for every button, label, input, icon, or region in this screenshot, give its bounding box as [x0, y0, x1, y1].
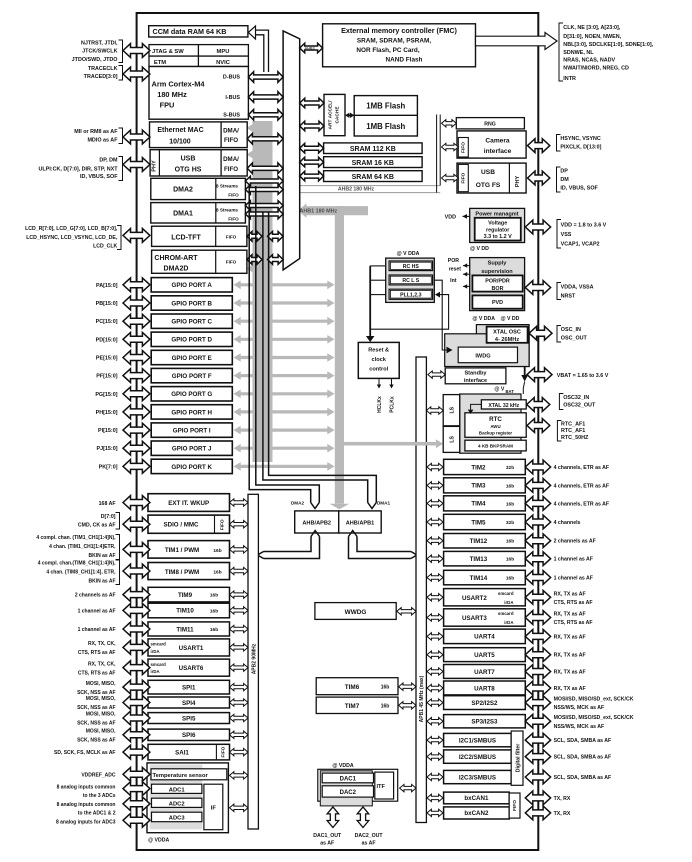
svg-text:RX, TX as AF: RX, TX as AF [554, 653, 586, 659]
svg-text:CLK, NE [3:0], A[23:0],: CLK, NE [3:0], A[23:0], [563, 25, 621, 31]
svg-text:CMD, CK as AF: CMD, CK as AF [78, 523, 116, 529]
svg-text:VSS: VSS [561, 232, 572, 238]
svg-text:RTC_50HZ: RTC_50HZ [561, 435, 589, 441]
svg-text:USART1: USART1 [179, 645, 204, 652]
svg-text:8 analog inputs for ADC3: 8 analog inputs for ADC3 [56, 820, 116, 826]
svg-text:JTAG & SW: JTAG & SW [152, 49, 184, 55]
svg-text:CCM data RAM 64 KB: CCM data RAM 64 KB [153, 27, 227, 36]
svg-text:NAND Flash: NAND Flash [386, 56, 423, 63]
svg-text:16b: 16b [213, 569, 221, 575]
svg-text:BKIN as AF: BKIN as AF [88, 578, 115, 584]
svg-text:ADC3: ADC3 [169, 816, 186, 822]
svg-text:MII or RMII as AF: MII or RMII as AF [74, 129, 118, 135]
svg-text:SP3/I2S3: SP3/I2S3 [471, 719, 498, 726]
svg-text:AHB/APB1: AHB/APB1 [346, 521, 375, 527]
svg-text:ADC2: ADC2 [169, 801, 185, 807]
svg-text:DMA/: DMA/ [223, 156, 239, 163]
svg-text:BOR: BOR [492, 286, 504, 292]
svg-text:interface: interface [484, 148, 512, 155]
svg-text:RX, TX as AF: RX, TX as AF [554, 634, 586, 640]
svg-text:BAT: BAT [506, 389, 515, 394]
svg-text:GPIO PORT K: GPIO PORT K [171, 464, 212, 471]
svg-text:RX, TX as AF: RX, TX as AF [554, 591, 586, 597]
svg-text:4 chan. (TIM1_CH1[1:4]ETR,: 4 chan. (TIM1_CH1[1:4]ETR, [49, 544, 116, 550]
svg-text:RC HS: RC HS [403, 264, 420, 270]
svg-text:CTS, RTS as AF: CTS, RTS as AF [554, 620, 593, 626]
svg-text:DMA2: DMA2 [291, 501, 304, 506]
svg-text:TX, RX: TX, RX [554, 811, 571, 817]
svg-text:OSC32_OUT: OSC32_OUT [563, 403, 596, 409]
svg-text:smcard: smcard [498, 611, 514, 616]
svg-text:SCL, SDA, SMBA as AF: SCL, SDA, SMBA as AF [554, 755, 612, 761]
svg-text:OSC32_IN: OSC32_IN [563, 395, 589, 401]
svg-text:DAC2_OUT: DAC2_OUT [355, 833, 384, 839]
svg-text:UART5: UART5 [474, 652, 495, 659]
svg-text:RTC_AF1: RTC_AF1 [561, 428, 585, 434]
svg-text:NRAS, NCAS, NADV: NRAS, NCAS, NADV [563, 58, 615, 64]
svg-text:irDA: irDA [504, 620, 514, 625]
svg-text:HCLKx: HCLKx [377, 396, 383, 413]
svg-text:RTC_AF1: RTC_AF1 [561, 422, 585, 428]
svg-text:16b: 16b [381, 704, 390, 710]
svg-text:RX, TX as AF: RX, TX as AF [554, 686, 586, 692]
svg-text:IF: IF [211, 806, 217, 812]
svg-text:NRST: NRST [561, 293, 576, 299]
svg-text:SPI4: SPI4 [182, 700, 196, 707]
svg-text:DMA2D: DMA2D [164, 265, 189, 272]
svg-text:1MB Flash: 1MB Flash [366, 101, 405, 110]
svg-text:FIFO: FIFO [220, 519, 226, 530]
svg-text:Digital filter: Digital filter [515, 744, 521, 773]
svg-text:RX, TX, CK,: RX, TX, CK, [88, 641, 116, 647]
svg-text:clock: clock [372, 357, 387, 363]
svg-text:POR/PDR: POR/PDR [485, 279, 510, 285]
svg-text:GPIO PORT C: GPIO PORT C [171, 319, 212, 326]
svg-text:4- 26MHz: 4- 26MHz [495, 337, 519, 343]
svg-text:VCAP1, VCAP2: VCAP1, VCAP2 [561, 242, 600, 248]
svg-text:Temperature sensor: Temperature sensor [153, 773, 209, 779]
svg-text:SD, SCK, FS, MCLK as AF: SD, SCK, FS, MCLK as AF [54, 750, 116, 756]
svg-text:TIM1 / PWM: TIM1 / PWM [165, 547, 199, 554]
svg-text:FIFO: FIFO [228, 192, 239, 197]
svg-text:I-BUS: I-BUS [225, 95, 240, 101]
svg-text:16b: 16b [506, 557, 514, 563]
svg-text:PHY: PHY [515, 175, 521, 187]
svg-text:POR: POR [448, 258, 459, 264]
svg-text:PH[15:0]: PH[15:0] [96, 410, 118, 416]
svg-text:GPIO PORT J: GPIO PORT J [172, 446, 212, 453]
svg-text:USB: USB [181, 155, 196, 162]
svg-text:RC L S: RC L S [402, 278, 419, 284]
svg-text:S-BUS: S-BUS [223, 112, 240, 118]
svg-text:4 chan. (TIM8_CH1[1:4], ETR,: 4 chan. (TIM8_CH1[1:4], ETR, [46, 569, 116, 575]
svg-text:USART2: USART2 [462, 595, 487, 602]
svg-text:16b: 16b [381, 685, 390, 691]
svg-text:USB: USB [481, 169, 495, 176]
svg-text:I2C1/SMBUS: I2C1/SMBUS [459, 737, 496, 744]
svg-text:PJ[15:0]: PJ[15:0] [97, 446, 118, 452]
svg-text:SCL, SDA, SMBA as AF: SCL, SDA, SMBA as AF [554, 775, 612, 781]
svg-text:irDA: irDA [151, 669, 160, 674]
svg-text:VDDREF_ADC: VDDREF_ADC [81, 772, 116, 778]
svg-text:PA[15:0]: PA[15:0] [96, 283, 118, 289]
svg-text:smcard: smcard [151, 662, 167, 667]
svg-text:SPI1: SPI1 [182, 684, 196, 691]
svg-text:RTC: RTC [489, 416, 502, 423]
svg-text:Voltage: Voltage [488, 221, 507, 227]
svg-text:UART8: UART8 [474, 685, 495, 692]
svg-text:@ V DD: @ V DD [501, 316, 520, 322]
svg-text:VDD: VDD [445, 214, 456, 220]
svg-text:PVD: PVD [492, 300, 503, 306]
svg-text:FIFO: FIFO [224, 166, 238, 173]
svg-text:SCK, NSS as AF: SCK, NSS as AF [77, 690, 115, 696]
svg-text:AWU: AWU [490, 424, 500, 429]
svg-text:168 AF: 168 AF [99, 501, 116, 507]
svg-text:@ VDDA: @ VDDA [148, 837, 169, 843]
svg-text:RNG: RNG [484, 122, 496, 128]
svg-text:VBAT = 1.65 to 3.6 V: VBAT = 1.65 to 3.6 V [557, 373, 609, 379]
svg-text:TIM10: TIM10 [176, 608, 194, 615]
svg-text:SPI6: SPI6 [182, 732, 196, 739]
svg-text:DP: DP [560, 169, 568, 175]
svg-text:FIFO: FIFO [224, 137, 238, 144]
svg-text:16b: 16b [506, 539, 514, 545]
svg-text:4 compl. chan.(TIM8_CH1[1:4]N): 4 compl. chan.(TIM8_CH1[1:4]N), [38, 560, 116, 566]
svg-text:MOSI, MISO,: MOSI, MISO, [86, 696, 116, 702]
svg-text:TRACED[3:0]: TRACED[3:0] [84, 74, 118, 80]
svg-text:TIM8 / PWM: TIM8 / PWM [165, 569, 199, 576]
svg-text:SCK, NSS as AF: SCK, NSS as AF [77, 738, 115, 744]
svg-text:SP2/I2S2: SP2/I2S2 [471, 700, 498, 707]
svg-text:as AF: as AF [362, 841, 376, 847]
svg-text:D-BUS: D-BUS [223, 74, 240, 80]
svg-text:D[7:0]: D[7:0] [101, 514, 116, 520]
svg-text:GPIO PORT D: GPIO PORT D [171, 337, 212, 344]
svg-text:AHB2 180 MHz: AHB2 180 MHz [338, 187, 375, 193]
svg-text:VDD = 1.8 to 3.6 V: VDD = 1.8 to 3.6 V [561, 223, 607, 229]
svg-text:BKIN as AF: BKIN as AF [88, 553, 115, 559]
svg-text:8 Streams: 8 Streams [216, 207, 238, 212]
svg-text:INTR: INTR [563, 76, 576, 82]
svg-text:Ethernet MAC: Ethernet MAC [157, 127, 203, 134]
svg-text:TIM12: TIM12 [470, 538, 488, 545]
svg-text:USART3: USART3 [462, 615, 487, 622]
svg-text:1MB Flash: 1MB Flash [366, 122, 405, 131]
svg-text:OTG HS: OTG HS [175, 167, 202, 174]
svg-text:Reset &: Reset & [368, 348, 389, 354]
svg-text:TIM4: TIM4 [471, 501, 486, 508]
svg-text:16b: 16b [213, 548, 221, 554]
svg-text:@ V DDA: @ V DDA [397, 251, 420, 257]
svg-text:PIXCLK, D[13:0]: PIXCLK, D[13:0] [560, 144, 601, 150]
svg-text:GPIO PORT F: GPIO PORT F [172, 373, 212, 380]
svg-text:8 Streams: 8 Streams [216, 183, 238, 188]
svg-text:MOSI, MISO,: MOSI, MISO, [86, 729, 116, 735]
svg-text:GPIO PORT B: GPIO PORT B [171, 300, 212, 307]
svg-text:I2C2/SMBUS: I2C2/SMBUS [459, 754, 496, 761]
svg-text:FIFO: FIFO [226, 260, 237, 265]
svg-text:D[31:0], NOEN, NWEN,: D[31:0], NOEN, NWEN, [563, 34, 621, 40]
svg-text:16b: 16b [210, 608, 218, 614]
svg-text:FIFO: FIFO [221, 746, 227, 757]
svg-text:4 channels, ETR as AF: 4 channels, ETR as AF [554, 465, 609, 471]
svg-text:APB1 45 MHz (max): APB1 45 MHz (max) [419, 675, 425, 722]
svg-text:GPIO PORT E: GPIO PORT E [172, 355, 212, 362]
svg-text:OTG FS: OTG FS [476, 182, 501, 189]
svg-text:DMA1: DMA1 [173, 211, 193, 218]
svg-text:NWAIT/NIORD, NREG, CD: NWAIT/NIORD, NREG, CD [563, 65, 629, 71]
svg-text:16b: 16b [506, 576, 514, 582]
svg-text:irDA: irDA [151, 649, 160, 654]
svg-text:VDDA, VSSA: VDDA, VSSA [561, 285, 594, 291]
svg-text:32b: 32b [506, 465, 514, 471]
svg-text:LS: LS [450, 406, 456, 413]
svg-text:3.3 to 1.2 V: 3.3 to 1.2 V [484, 234, 513, 240]
svg-text:GPIO PORT G: GPIO PORT G [171, 391, 212, 398]
svg-text:FIFO: FIFO [226, 235, 237, 240]
svg-text:HSYNC, VSYNC: HSYNC, VSYNC [560, 136, 601, 142]
svg-text:16b: 16b [210, 627, 218, 633]
svg-text:JTDO/SWD, JTDO: JTDO/SWD, JTDO [72, 57, 118, 63]
svg-text:PLL1,2,3: PLL1,2,3 [400, 293, 421, 299]
svg-text:TRACECLK: TRACECLK [88, 66, 118, 72]
svg-text:ADC1: ADC1 [169, 787, 186, 793]
svg-text:FPU: FPU [160, 101, 175, 110]
svg-text:2 channels as AF: 2 channels as AF [554, 539, 596, 545]
svg-text:180 MHz: 180 MHz [157, 90, 187, 99]
svg-text:UART4: UART4 [474, 634, 495, 641]
svg-text:1 channel as AF: 1 channel as AF [554, 576, 593, 582]
svg-text:10/100: 10/100 [169, 139, 191, 146]
svg-text:TIM7: TIM7 [345, 703, 360, 710]
svg-text:XTAL 32 kHz: XTAL 32 kHz [488, 403, 519, 409]
svg-text:TIM13: TIM13 [470, 556, 488, 563]
svg-text:TIM9: TIM9 [178, 592, 193, 599]
svg-text:DMA1: DMA1 [377, 501, 390, 506]
svg-text:1 channel as AF: 1 channel as AF [78, 608, 116, 614]
svg-text:MOSI, MISO,: MOSI, MISO, [86, 712, 116, 718]
svg-text:4 channels: 4 channels [554, 520, 581, 526]
svg-text:GPIO PORT I: GPIO PORT I [173, 428, 211, 435]
svg-text:CACHE: CACHE [335, 106, 341, 124]
svg-text:to the ADC1 & 2: to the ADC1 & 2 [78, 811, 116, 817]
svg-text:PK[7:0]: PK[7:0] [99, 464, 118, 470]
svg-text:4 channels, ETR as AF: 4 channels, ETR as AF [554, 483, 609, 489]
svg-text:USART6: USART6 [179, 665, 204, 672]
svg-text:AHB1 180 MHz: AHB1 180 MHz [300, 209, 338, 215]
svg-text:SRAM 112 KB: SRAM 112 KB [350, 146, 396, 153]
svg-text:ID, VBUS, SOF: ID, VBUS, SOF [80, 174, 118, 180]
svg-text:8 analog inputs common: 8 analog inputs common [57, 802, 116, 808]
svg-text:TIM3: TIM3 [471, 483, 486, 490]
svg-text:AHB3: AHB3 [304, 47, 314, 51]
svg-text:Camera: Camera [485, 138, 510, 145]
svg-text:PC[15:0]: PC[15:0] [96, 319, 118, 325]
svg-text:FIFO: FIFO [228, 216, 239, 221]
svg-text:1 channel as AF: 1 channel as AF [554, 557, 593, 563]
svg-text:ULPI:CK, D[7:0], DIR, STP, NXT: ULPI:CK, D[7:0], DIR, STP, NXT [39, 166, 119, 172]
svg-text:SCL, SDA, SMBA as AF: SCL, SDA, SMBA as AF [554, 738, 612, 744]
svg-text:NSS/WS, MCK as AF: NSS/WS, MCK as AF [554, 724, 605, 730]
svg-text:SCK, NSS as AF: SCK, NSS as AF [77, 721, 115, 727]
svg-text:GPIO PORT A: GPIO PORT A [172, 282, 213, 289]
svg-text:DM: DM [560, 177, 569, 183]
svg-text:supervision: supervision [481, 269, 513, 275]
svg-text:SDIO / MMC: SDIO / MMC [163, 522, 199, 529]
svg-text:XTAL OSC: XTAL OSC [493, 329, 521, 335]
svg-text:PD[15:0]: PD[15:0] [96, 337, 118, 343]
svg-text:reset: reset [449, 267, 462, 273]
svg-text:Power managmt: Power managmt [475, 212, 518, 218]
svg-text:FIFO: FIFO [461, 172, 467, 183]
svg-text:MOSI/SD, MISO/SD_ext, SCK/CK: MOSI/SD, MISO/SD_ext, SCK/CK [554, 697, 634, 703]
svg-text:1 channel as AF: 1 channel as AF [78, 627, 116, 633]
svg-text:CTS, RTS as AF: CTS, RTS as AF [78, 650, 116, 656]
svg-text:4 KB BKPSRAM: 4 KB BKPSRAM [478, 444, 513, 449]
svg-text:RX, TX as AF: RX, TX as AF [554, 612, 586, 618]
svg-text:SPI5: SPI5 [182, 715, 196, 722]
svg-text:PHY: PHY [152, 160, 158, 172]
svg-text:16b: 16b [506, 483, 514, 489]
svg-text:APB2 90MHz: APB2 90MHz [252, 643, 258, 674]
svg-text:as AF: as AF [320, 841, 334, 847]
svg-text:ETM: ETM [154, 60, 166, 66]
svg-text:NOR Flash, PC Card,: NOR Flash, PC Card, [356, 47, 419, 54]
svg-text:Supply: Supply [488, 261, 508, 267]
svg-text:ART ACCEL/: ART ACCEL/ [328, 100, 334, 130]
svg-text:TX, RX: TX, RX [554, 796, 571, 802]
svg-text:smcard: smcard [151, 642, 167, 647]
svg-text:Arm Cortex-M4: Arm Cortex-M4 [152, 79, 206, 88]
svg-text:@ VDDA: @ VDDA [332, 763, 353, 769]
svg-text:16b: 16b [210, 593, 218, 599]
svg-text:TIM6: TIM6 [345, 684, 360, 691]
svg-text:I2C3/SMBUS: I2C3/SMBUS [459, 774, 496, 781]
svg-text:16b: 16b [506, 501, 514, 507]
svg-text:LCD_HSYNC, LCD_VSYNC, LCD_DE,: LCD_HSYNC, LCD_VSYNC, LCD_DE, [26, 235, 118, 241]
svg-text:AHB/APB2: AHB/APB2 [302, 521, 331, 527]
svg-text:ID, VBUS, SOF: ID, VBUS, SOF [560, 186, 598, 192]
svg-text:EXT IT. WKUP: EXT IT. WKUP [168, 500, 209, 507]
svg-text:SCK, NSS as AF: SCK, NSS as AF [77, 705, 115, 711]
svg-text:NVIC: NVIC [216, 60, 231, 66]
svg-text:LCD_CLK: LCD_CLK [93, 244, 117, 250]
svg-text:GPIO PORT H: GPIO PORT H [171, 409, 212, 416]
svg-text:PG[15:0]: PG[15:0] [95, 392, 117, 398]
svg-text:interface: interface [464, 378, 487, 384]
svg-text:MPU: MPU [217, 49, 230, 55]
svg-text:@ V DD: @ V DD [470, 246, 489, 252]
svg-text:smcard: smcard [498, 591, 514, 596]
svg-text:@ V: @ V [494, 386, 504, 392]
svg-text:regulator: regulator [486, 227, 510, 233]
svg-text:32b: 32b [506, 520, 514, 526]
svg-text:FIFO: FIFO [512, 800, 518, 811]
svg-text:IWDG: IWDG [475, 353, 490, 359]
svg-text:irDA: irDA [504, 600, 514, 605]
svg-text:ITF: ITF [377, 784, 386, 790]
svg-text:Standby: Standby [464, 370, 487, 376]
svg-text:External memory controller (FM: External memory controller (FMC) [341, 26, 457, 35]
svg-text:NBL[3:0], SDCLKE[1:0], SDNE[1:: NBL[3:0], SDCLKE[1:0], SDNE[1:0], [563, 42, 653, 48]
svg-text:WWDG: WWDG [345, 609, 367, 616]
svg-text:SDNWE, NL: SDNWE, NL [563, 50, 594, 56]
svg-text:CTS, RTS as AF: CTS, RTS as AF [554, 600, 593, 606]
svg-text:NJTRST, JTDI,: NJTRST, JTDI, [81, 41, 118, 47]
svg-text:control: control [369, 367, 388, 373]
svg-text:RX, TX, CK,: RX, TX, CK, [88, 661, 116, 667]
svg-text:CHROM-ART: CHROM-ART [154, 255, 198, 262]
svg-text:DAC1: DAC1 [340, 777, 357, 783]
svg-text:SRAM, SDRAM, PSRAM,: SRAM, SDRAM, PSRAM, [357, 37, 431, 44]
svg-text:PB[15:0]: PB[15:0] [96, 301, 118, 307]
svg-text:Backup register: Backup register [479, 431, 512, 436]
svg-text:SRAM 64 KB: SRAM 64 KB [352, 174, 394, 181]
svg-text:bxCAN1: bxCAN1 [464, 795, 489, 802]
svg-text:TIM2: TIM2 [471, 464, 486, 471]
svg-text:MDIO as AF: MDIO as AF [87, 137, 118, 143]
svg-text:4 compl. chan. (TIM1_CH1[1:4]N: 4 compl. chan. (TIM1_CH1[1:4]N), [36, 535, 116, 541]
svg-text:PF[15:0]: PF[15:0] [96, 374, 117, 380]
svg-text:TIM14: TIM14 [470, 575, 488, 582]
svg-text:@ V DDA: @ V DDA [472, 316, 495, 322]
svg-text:OSC_IN: OSC_IN [561, 327, 581, 333]
svg-text:DP, DM: DP, DM [99, 158, 118, 164]
svg-text:TIM11: TIM11 [176, 626, 194, 633]
svg-text:UART7: UART7 [474, 669, 495, 676]
svg-text:TIM5: TIM5 [471, 519, 486, 526]
svg-text:LCD-TFT: LCD-TFT [171, 234, 201, 241]
svg-text:to the 3 ADCs: to the 3 ADCs [83, 793, 116, 799]
svg-text:SRAM 16 KB: SRAM 16 KB [352, 160, 394, 167]
svg-text:PCLKx: PCLKx [390, 396, 396, 413]
svg-text:CTS, RTS as AF: CTS, RTS as AF [78, 670, 116, 676]
svg-text:DAC2: DAC2 [340, 790, 357, 796]
svg-text:SAI1: SAI1 [175, 749, 189, 756]
svg-text:DMA/: DMA/ [223, 128, 239, 135]
svg-text:RX, TX as AF: RX, TX as AF [554, 670, 586, 676]
svg-text:PE[15:0]: PE[15:0] [96, 356, 118, 362]
svg-text:NSS/WS, MCK as AF: NSS/WS, MCK as AF [554, 705, 605, 711]
svg-text:DAC1_OUT: DAC1_OUT [313, 833, 342, 839]
svg-text:8 analog inputs common: 8 analog inputs common [57, 784, 116, 790]
svg-text:2 channels as AF: 2 channels as AF [75, 593, 116, 599]
svg-text:4 channels, ETR as AF: 4 channels, ETR as AF [554, 501, 609, 507]
svg-text:LCD_R[7:0], LCD_G[7:0], LCD_B[: LCD_R[7:0], LCD_G[7:0], LCD_B[7:0], [25, 226, 118, 232]
svg-text:MOSI/SD, MISO/SD_ext, SCK/CK: MOSI/SD, MISO/SD_ext, SCK/CK [554, 715, 634, 721]
svg-text:FIFO: FIFO [461, 142, 467, 153]
svg-text:bxCAN2: bxCAN2 [464, 810, 489, 817]
svg-text:LS: LS [450, 436, 456, 443]
svg-text:OSC_OUT: OSC_OUT [561, 336, 588, 342]
svg-text:JTCK/SWCLK: JTCK/SWCLK [82, 48, 117, 54]
svg-text:DMA2: DMA2 [173, 187, 193, 194]
svg-text:Int: Int [450, 278, 457, 284]
svg-text:PI[15:0]: PI[15:0] [98, 428, 118, 434]
svg-text:MOSI, MISO,: MOSI, MISO, [86, 681, 116, 687]
